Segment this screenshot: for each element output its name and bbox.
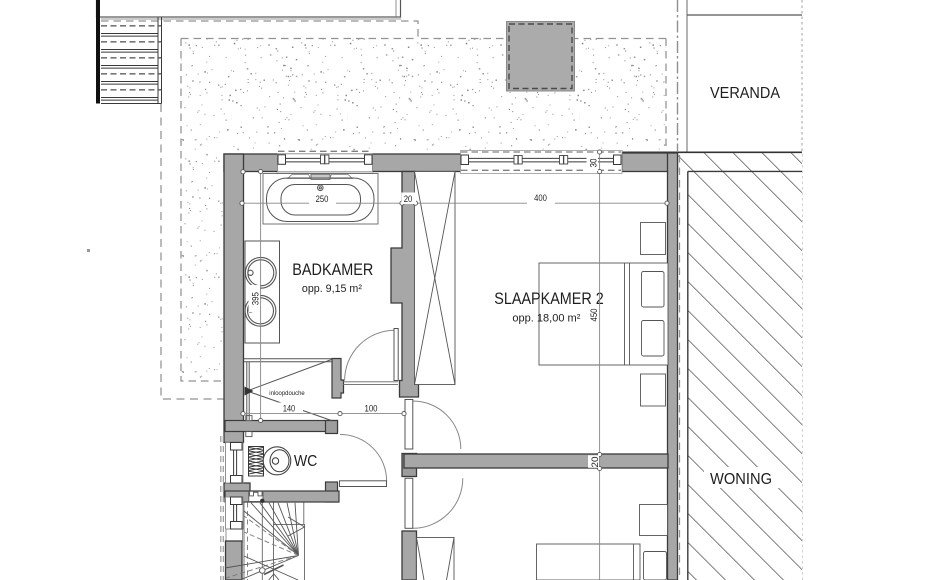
- svg-text:450: 450: [588, 309, 599, 322]
- svg-text:WONING: WONING: [710, 471, 772, 488]
- svg-text:opp. 9,15 m²: opp. 9,15 m²: [302, 283, 362, 295]
- svg-text:VERANDA: VERANDA: [710, 85, 781, 102]
- svg-text:395: 395: [249, 292, 260, 305]
- svg-text:140: 140: [283, 403, 295, 414]
- svg-text:100: 100: [365, 403, 378, 414]
- svg-text:opp. 18,00 m²: opp. 18,00 m²: [512, 313, 580, 325]
- svg-text:WC: WC: [294, 453, 318, 470]
- svg-text:BADKAMER: BADKAMER: [292, 261, 373, 279]
- svg-text:20: 20: [589, 457, 600, 468]
- svg-text:30: 30: [588, 159, 599, 168]
- svg-text:20: 20: [404, 193, 413, 204]
- svg-text:400: 400: [534, 192, 547, 203]
- svg-text:SLAAPKAMER 2: SLAAPKAMER 2: [494, 289, 603, 308]
- svg-text:250: 250: [316, 193, 329, 204]
- svg-text:inloopdouche: inloopdouche: [269, 390, 305, 397]
